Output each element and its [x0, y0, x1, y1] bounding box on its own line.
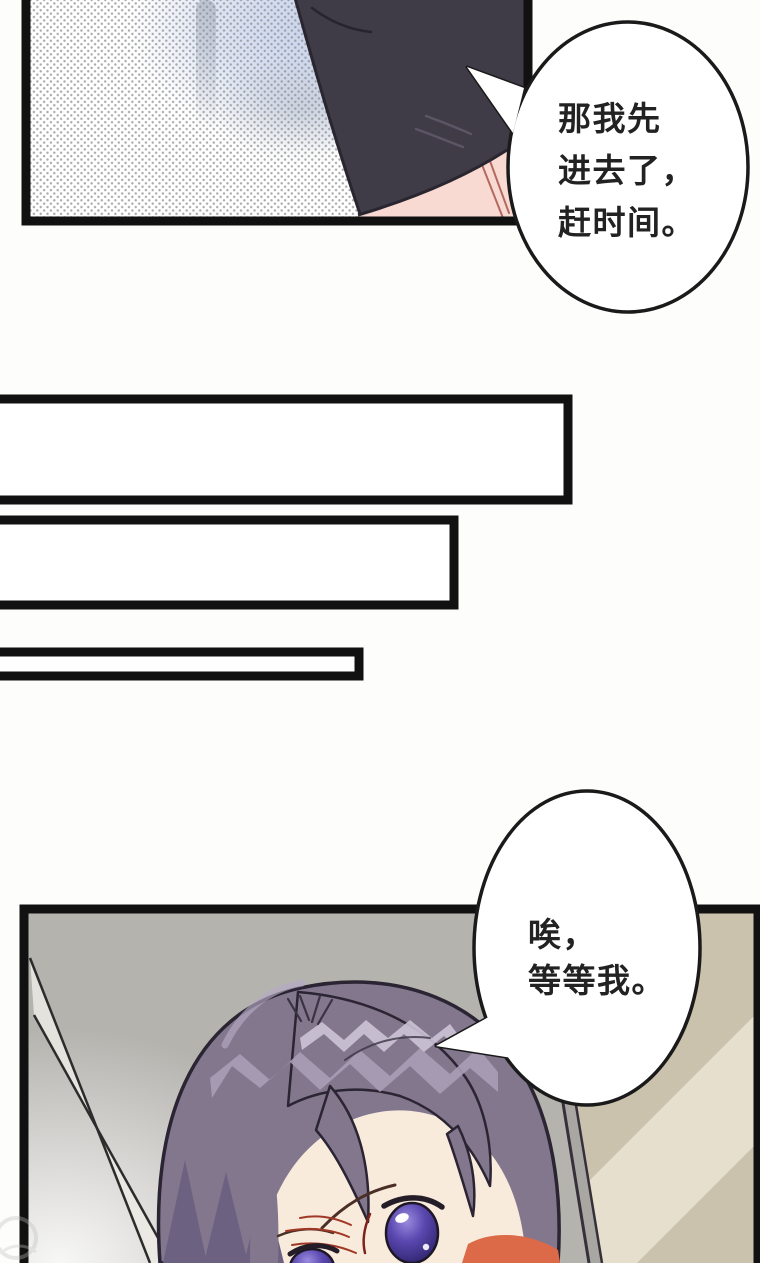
empty-panel-1	[0, 399, 568, 500]
bubble-top-line-2: 进去了，	[558, 151, 696, 190]
manga-artwork: 那我先 进去了， 赶时间。	[0, 0, 760, 1263]
eye-right-glint-small	[423, 1244, 429, 1250]
eye-right-iris	[386, 1203, 438, 1263]
top-panel	[22, 0, 560, 222]
empty-panel-3	[0, 652, 359, 676]
bubble-bottom-line-2: 等等我。	[528, 961, 666, 1000]
bubble-top-line-3: 赶时间。	[558, 203, 696, 242]
bubble-bottom-line-1: 唉，	[528, 915, 597, 954]
empty-panel-2	[0, 520, 454, 605]
bubble-top-line-1: 那我先	[558, 99, 662, 138]
manga-page: 那我先 进去了， 赶时间。	[0, 0, 760, 1263]
